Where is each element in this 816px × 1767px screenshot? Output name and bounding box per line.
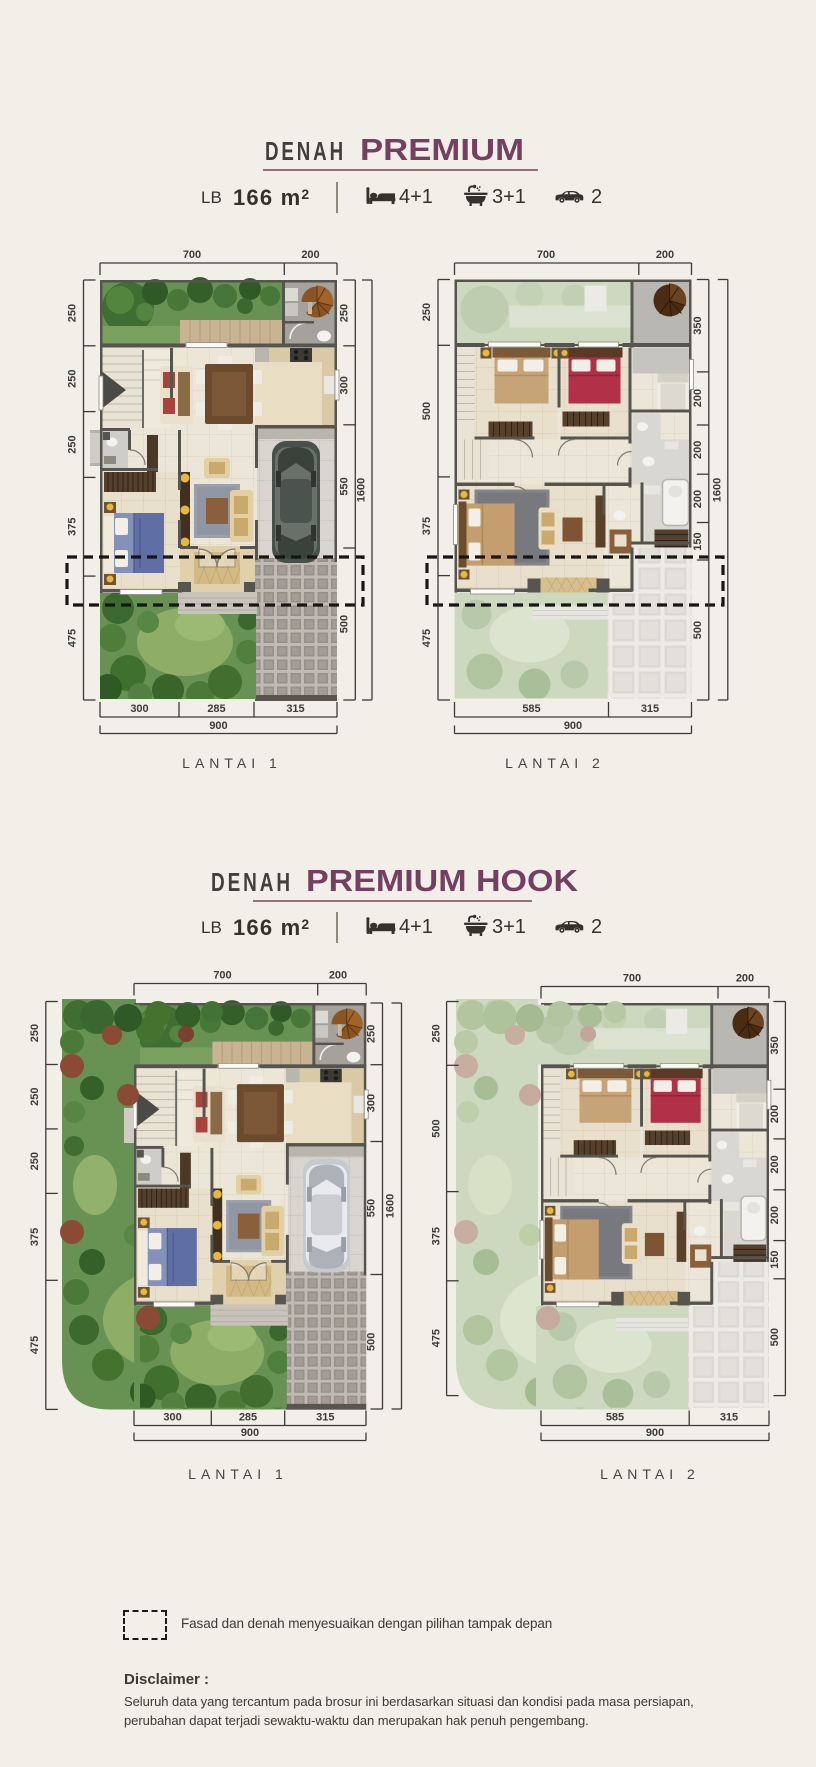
svg-text:475: 475 bbox=[29, 1336, 41, 1354]
svg-text:200: 200 bbox=[769, 1105, 781, 1123]
svg-text:PREMIUM: PREMIUM bbox=[360, 132, 524, 167]
svg-text:475: 475 bbox=[431, 1329, 443, 1347]
svg-text:200: 200 bbox=[692, 490, 704, 508]
svg-text:900: 900 bbox=[241, 1427, 259, 1439]
svg-text:900: 900 bbox=[646, 1427, 664, 1439]
svg-text:375: 375 bbox=[29, 1228, 41, 1246]
svg-text:700: 700 bbox=[213, 970, 231, 982]
svg-text:250: 250 bbox=[67, 304, 79, 322]
svg-text:700: 700 bbox=[183, 249, 201, 261]
svg-text:250: 250 bbox=[29, 1088, 41, 1106]
svg-text:315: 315 bbox=[286, 703, 304, 715]
svg-text:585: 585 bbox=[522, 703, 540, 715]
svg-text:250: 250 bbox=[67, 435, 79, 453]
svg-text:900: 900 bbox=[564, 720, 582, 732]
svg-text:350: 350 bbox=[769, 1036, 781, 1054]
svg-text:300: 300 bbox=[163, 1412, 181, 1424]
svg-text:550: 550 bbox=[366, 1199, 378, 1217]
svg-text:315: 315 bbox=[641, 703, 659, 715]
svg-text:150: 150 bbox=[769, 1251, 781, 1269]
svg-text:250: 250 bbox=[339, 304, 351, 322]
svg-text:700: 700 bbox=[623, 973, 641, 985]
svg-text:200: 200 bbox=[769, 1206, 781, 1224]
svg-text:500: 500 bbox=[769, 1328, 781, 1346]
svg-text:475: 475 bbox=[421, 629, 433, 647]
svg-text:285: 285 bbox=[239, 1412, 257, 1424]
svg-text:200: 200 bbox=[692, 441, 704, 459]
svg-text:700: 700 bbox=[537, 249, 555, 261]
svg-text:200: 200 bbox=[301, 249, 319, 261]
svg-text:475: 475 bbox=[67, 629, 79, 647]
svg-text:285: 285 bbox=[207, 703, 225, 715]
svg-text:250: 250 bbox=[29, 1024, 41, 1042]
svg-text:375: 375 bbox=[421, 517, 433, 535]
svg-text:900: 900 bbox=[209, 720, 227, 732]
svg-text:350: 350 bbox=[692, 316, 704, 334]
svg-text:200: 200 bbox=[692, 389, 704, 407]
svg-text:500: 500 bbox=[421, 402, 433, 420]
svg-text:1600: 1600 bbox=[356, 478, 368, 502]
svg-text:250: 250 bbox=[431, 1024, 443, 1042]
svg-text:550: 550 bbox=[339, 477, 351, 495]
svg-text:500: 500 bbox=[692, 621, 704, 639]
svg-text:300: 300 bbox=[130, 703, 148, 715]
svg-text:DENAH: DENAH bbox=[211, 867, 293, 897]
svg-text:200: 200 bbox=[769, 1155, 781, 1173]
svg-text:250: 250 bbox=[366, 1025, 378, 1043]
svg-text:200: 200 bbox=[736, 973, 754, 985]
svg-text:250: 250 bbox=[29, 1152, 41, 1170]
svg-text:500: 500 bbox=[366, 1333, 378, 1351]
svg-text:500: 500 bbox=[431, 1119, 443, 1137]
svg-text:375: 375 bbox=[431, 1227, 443, 1245]
svg-text:1600: 1600 bbox=[712, 478, 724, 502]
svg-text:585: 585 bbox=[606, 1412, 624, 1424]
svg-text:250: 250 bbox=[421, 303, 433, 321]
svg-text:500: 500 bbox=[339, 615, 351, 633]
svg-text:200: 200 bbox=[656, 249, 674, 261]
svg-text:315: 315 bbox=[720, 1412, 738, 1424]
svg-text:DENAH: DENAH bbox=[265, 136, 346, 166]
svg-text:300: 300 bbox=[366, 1094, 378, 1112]
svg-text:PREMIUM HOOK: PREMIUM HOOK bbox=[306, 863, 579, 898]
svg-text:315: 315 bbox=[316, 1412, 334, 1424]
svg-text:375: 375 bbox=[67, 518, 79, 536]
svg-text:300: 300 bbox=[339, 376, 351, 394]
svg-text:200: 200 bbox=[329, 970, 347, 982]
svg-text:150: 150 bbox=[692, 532, 704, 550]
svg-text:250: 250 bbox=[67, 370, 79, 388]
svg-text:1600: 1600 bbox=[385, 1194, 397, 1218]
